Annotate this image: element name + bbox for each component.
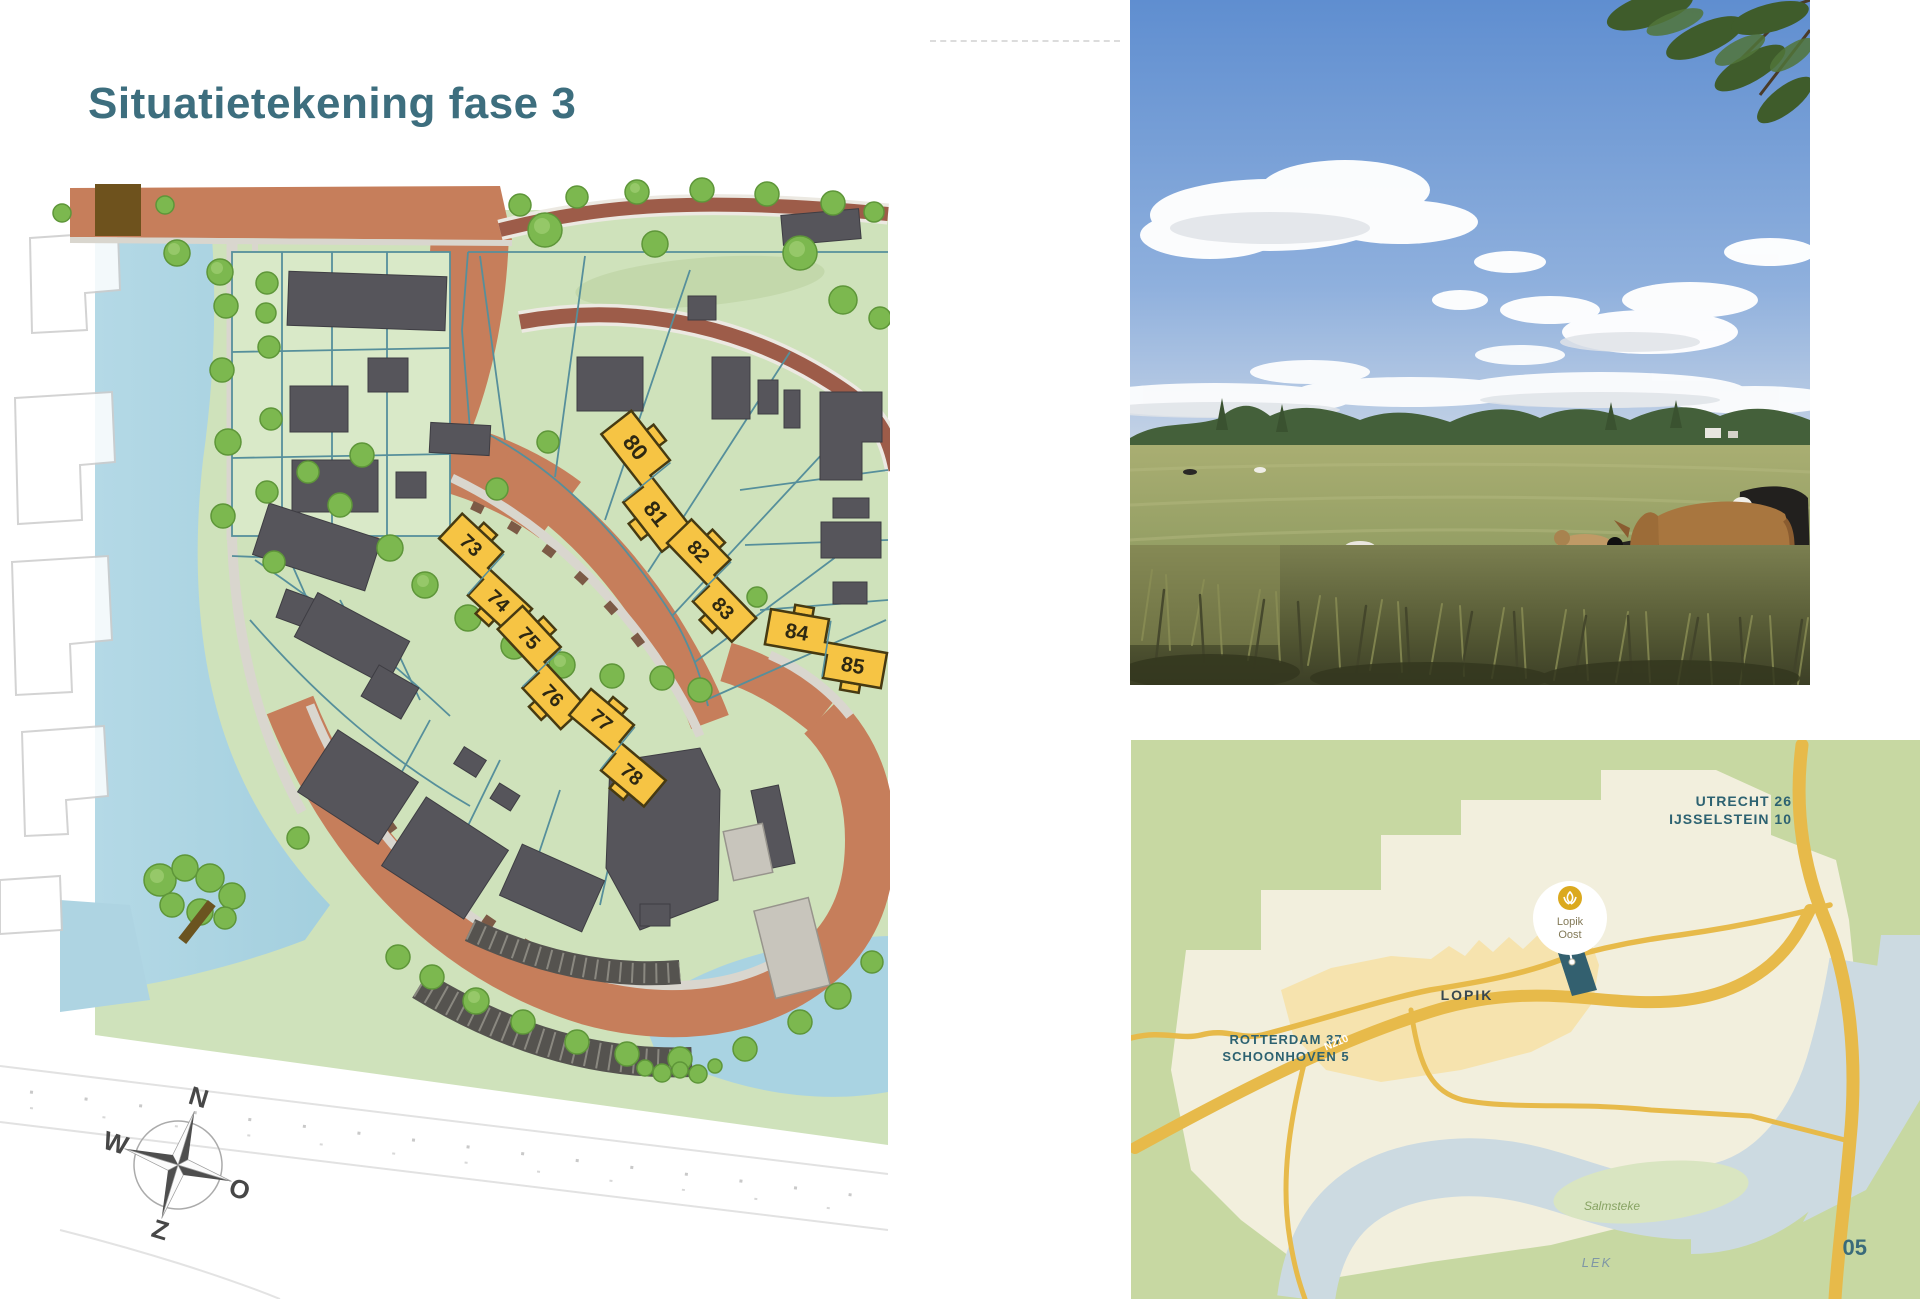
label-salmsteke: Salmsteke: [1584, 1199, 1640, 1213]
plot-number: 84: [783, 619, 810, 646]
marker-label-line2: Oost: [1558, 929, 1581, 941]
marker-label-line1: Lopik: [1557, 916, 1584, 928]
site-plan: 73 74 75 76 77 78: [0, 170, 890, 1299]
label-ijsselstein: IJSSELSTEIN 10: [1669, 811, 1792, 827]
sketch-dotted-line: [930, 40, 1120, 42]
location-map: Lopik Oost UTRECHT 26 IJSSELSTEIN 10 ROT…: [1131, 740, 1920, 1299]
marker-logo-icon: [1558, 886, 1582, 910]
page-title: Situatietekening fase 3: [88, 80, 576, 128]
label-utrecht: UTRECHT 26: [1696, 793, 1792, 809]
plot-number: 85: [839, 653, 866, 680]
label-lek: LEK: [1582, 1255, 1613, 1270]
label-lopik: LOPIK: [1441, 987, 1494, 1003]
page-number: 05: [1843, 1235, 1867, 1260]
brochure-page: Situatietekening fase 3: [0, 0, 1920, 1299]
meadow-photo: [1130, 0, 1810, 685]
